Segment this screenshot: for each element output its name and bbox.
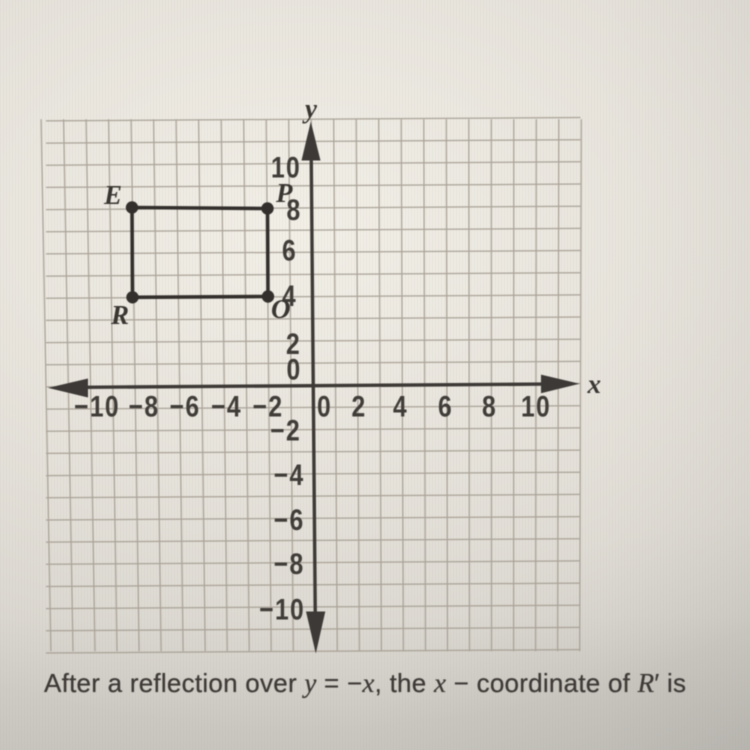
svg-text:−8: −8 <box>274 547 305 581</box>
svg-text:0: 0 <box>286 352 301 386</box>
svg-text:−2: −2 <box>270 413 301 447</box>
svg-text:O: O <box>271 294 291 324</box>
svg-text:−10: −10 <box>74 389 120 423</box>
svg-text:−4: −4 <box>274 458 305 492</box>
svg-text:−6: −6 <box>274 503 305 537</box>
svg-text:E: E <box>103 180 122 210</box>
svg-text:6: 6 <box>282 233 297 267</box>
svg-text:2: 2 <box>351 389 366 423</box>
svg-text:−6: −6 <box>170 389 201 423</box>
svg-text:−10: −10 <box>259 592 305 626</box>
svg-text:6: 6 <box>438 389 453 423</box>
svg-text:−8: −8 <box>129 389 160 423</box>
svg-text:8: 8 <box>482 389 497 423</box>
svg-text:−4: −4 <box>211 389 242 423</box>
svg-text:y: y <box>302 94 318 124</box>
svg-text:0: 0 <box>317 389 332 423</box>
svg-text:P: P <box>275 178 293 208</box>
svg-text:R: R <box>110 300 129 330</box>
svg-text:4: 4 <box>393 389 408 423</box>
svg-text:10: 10 <box>521 389 551 423</box>
svg-text:x: x <box>587 369 602 399</box>
